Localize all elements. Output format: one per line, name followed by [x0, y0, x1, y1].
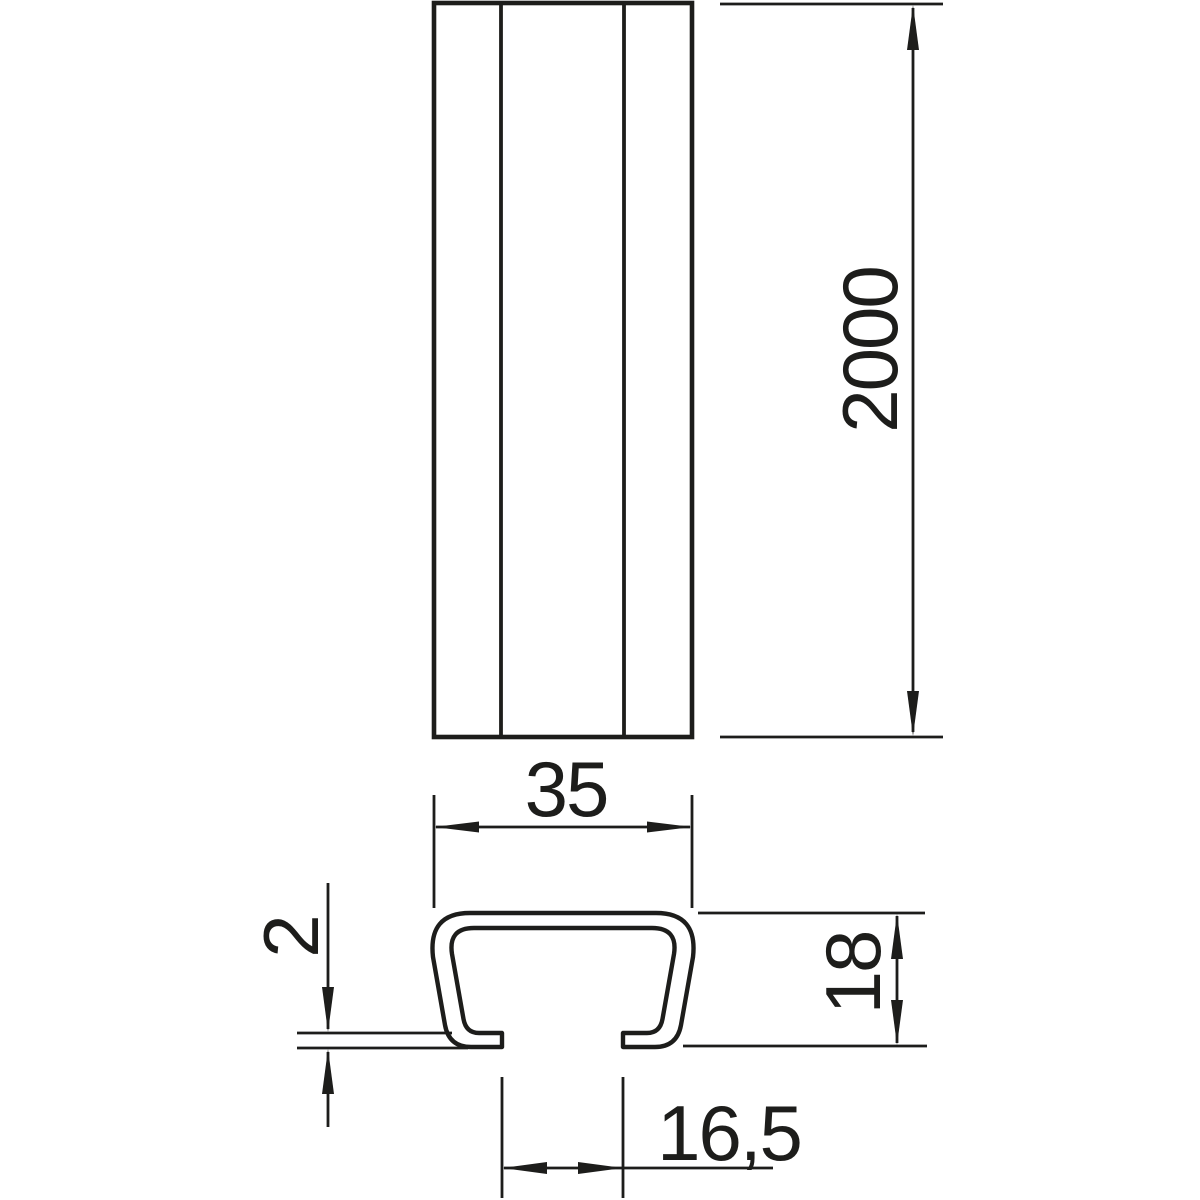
dimension-width: 35: [434, 745, 692, 908]
c-profile-outline: [432, 913, 693, 1047]
width-dimension-label: 35: [525, 745, 608, 833]
dimension-slot-width: 16,5: [502, 1077, 801, 1198]
arrow-up-icon: [322, 1049, 334, 1094]
technical-drawing-svg: 2000 35 2: [0, 0, 1200, 1200]
drawing-canvas: 2000 35 2: [0, 0, 1200, 1200]
height-dimension-label: 18: [809, 932, 897, 1015]
arrow-right-icon: [578, 1162, 623, 1174]
dimension-profile-height: 18: [683, 913, 927, 1046]
rail-cross-section: [432, 913, 693, 1047]
arrow-up-icon: [907, 5, 919, 50]
slot-dimension-label: 16,5: [657, 1089, 801, 1177]
thickness-dimension-label: 2: [247, 916, 335, 957]
length-dimension-label: 2000: [826, 267, 914, 433]
arrow-down-icon: [322, 987, 334, 1032]
rail-front-outline: [434, 3, 692, 737]
arrow-left-icon: [434, 822, 479, 833]
dimension-length: 2000: [720, 4, 943, 737]
arrow-right-icon: [647, 822, 692, 833]
dimension-material-thickness: 2: [247, 883, 468, 1127]
arrow-left-icon: [502, 1162, 547, 1174]
arrow-down-icon: [907, 691, 919, 736]
rail-front-view: [434, 3, 692, 737]
